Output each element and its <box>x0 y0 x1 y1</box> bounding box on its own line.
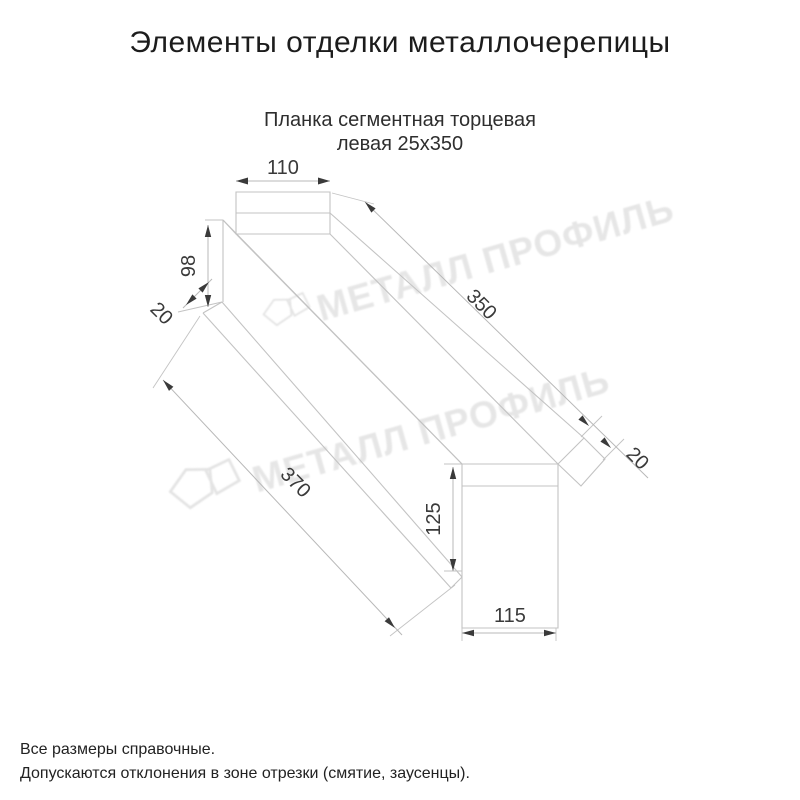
watermark-upper: МЕТАЛЛ ПРОФИЛЬ <box>261 187 679 344</box>
dim-label-top-length: 350 <box>462 285 501 324</box>
watermark-lower: МЕТАЛЛ ПРОФИЛЬ <box>166 351 615 523</box>
footer-note-1: Все размеры справочные. <box>20 738 780 762</box>
dim-label-far-width: 115 <box>494 605 526 627</box>
dim-label-far-hem: 20 <box>622 443 653 474</box>
dim-label-near-hem: 20 <box>146 298 177 329</box>
metall-profil-logo-icon <box>166 456 243 511</box>
dim-label-top-width: 110 <box>267 157 299 179</box>
page: Элементы отделки металлочерепицы Планка … <box>0 0 800 800</box>
footer-notes: Все размеры справочные. Допускаются откл… <box>20 738 780 786</box>
dim-label-far-flange-height: 125 <box>423 502 445 535</box>
technical-drawing: МЕТАЛЛ ПРОФИЛЬ МЕТАЛЛ ПРОФИЛЬ <box>0 0 800 800</box>
metall-profil-logo-icon <box>261 291 312 328</box>
dim-label-near-flange-height: 98 <box>178 255 200 277</box>
footer-note-2: Допускаются отклонения в зоне отрезки (с… <box>20 762 780 786</box>
